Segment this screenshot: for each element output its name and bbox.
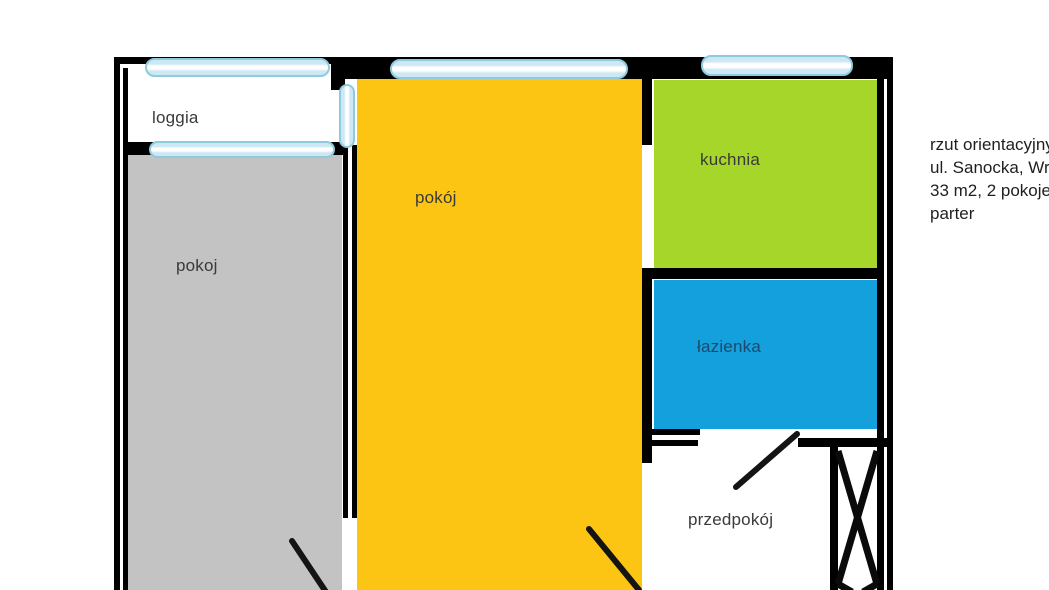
wall-left-outer: [114, 57, 120, 590]
room-przedpokoj: przedpokój: [652, 447, 830, 590]
info-panel: rzut orientacyjny ul. Sanocka, Wro 33 m2…: [930, 133, 1049, 225]
info-line-area: 33 m2, 2 pokoje: [930, 179, 1049, 202]
wall-right-outer: [887, 57, 893, 590]
shaft-cross-line-2: [838, 451, 877, 584]
room-label-lazienka: łazienka: [697, 337, 761, 357]
info-line-title: rzut orientacyjny: [930, 133, 1049, 156]
wall-right-inner: [877, 66, 884, 590]
floor-plan: loggia pokoj pokój kuchnia łazienka prze…: [0, 0, 1049, 590]
window-loggia-bottom: [149, 141, 335, 158]
shaft-cross-stub-1: [838, 584, 852, 590]
room-pokoj-main: pokój: [357, 78, 642, 590]
wall-lazienka-bottom-a: [652, 429, 700, 435]
wall-kuchnia-left-upper: [642, 67, 652, 145]
window-loggia-top: [145, 58, 330, 77]
wall-kuchnia-lazienka: [642, 268, 883, 279]
info-line-address: ul. Sanocka, Wro: [930, 156, 1049, 179]
room-pokoj-left: pokoj: [128, 155, 342, 590]
wall-lazienka-left: [642, 279, 652, 463]
room-label-loggia: loggia: [152, 108, 199, 128]
room-label-kuchnia: kuchnia: [700, 150, 760, 170]
room-label-pokoj-main: pokój: [415, 188, 457, 208]
shaft-cross-line-1: [838, 451, 877, 584]
wall-rooms-divider-a: [343, 145, 348, 518]
wall-przedpokoj-top-right: [798, 438, 889, 447]
window-pokoj-main: [390, 59, 628, 79]
window-kuchnia: [701, 55, 853, 76]
room-kuchnia: kuchnia: [654, 80, 878, 268]
window-loggia-side: [339, 84, 355, 148]
room-label-przedpokoj: przedpokój: [688, 510, 773, 530]
room-lazienka: łazienka: [654, 280, 878, 429]
shaft-cross-stub-2: [863, 584, 877, 590]
wall-shaft-left: [830, 447, 838, 590]
room-label-pokoj-left: pokoj: [176, 256, 218, 276]
wall-lazienka-bottom-b: [652, 440, 698, 446]
info-line-floor: parter: [930, 202, 1049, 225]
wall-rooms-divider-b: [352, 145, 357, 518]
